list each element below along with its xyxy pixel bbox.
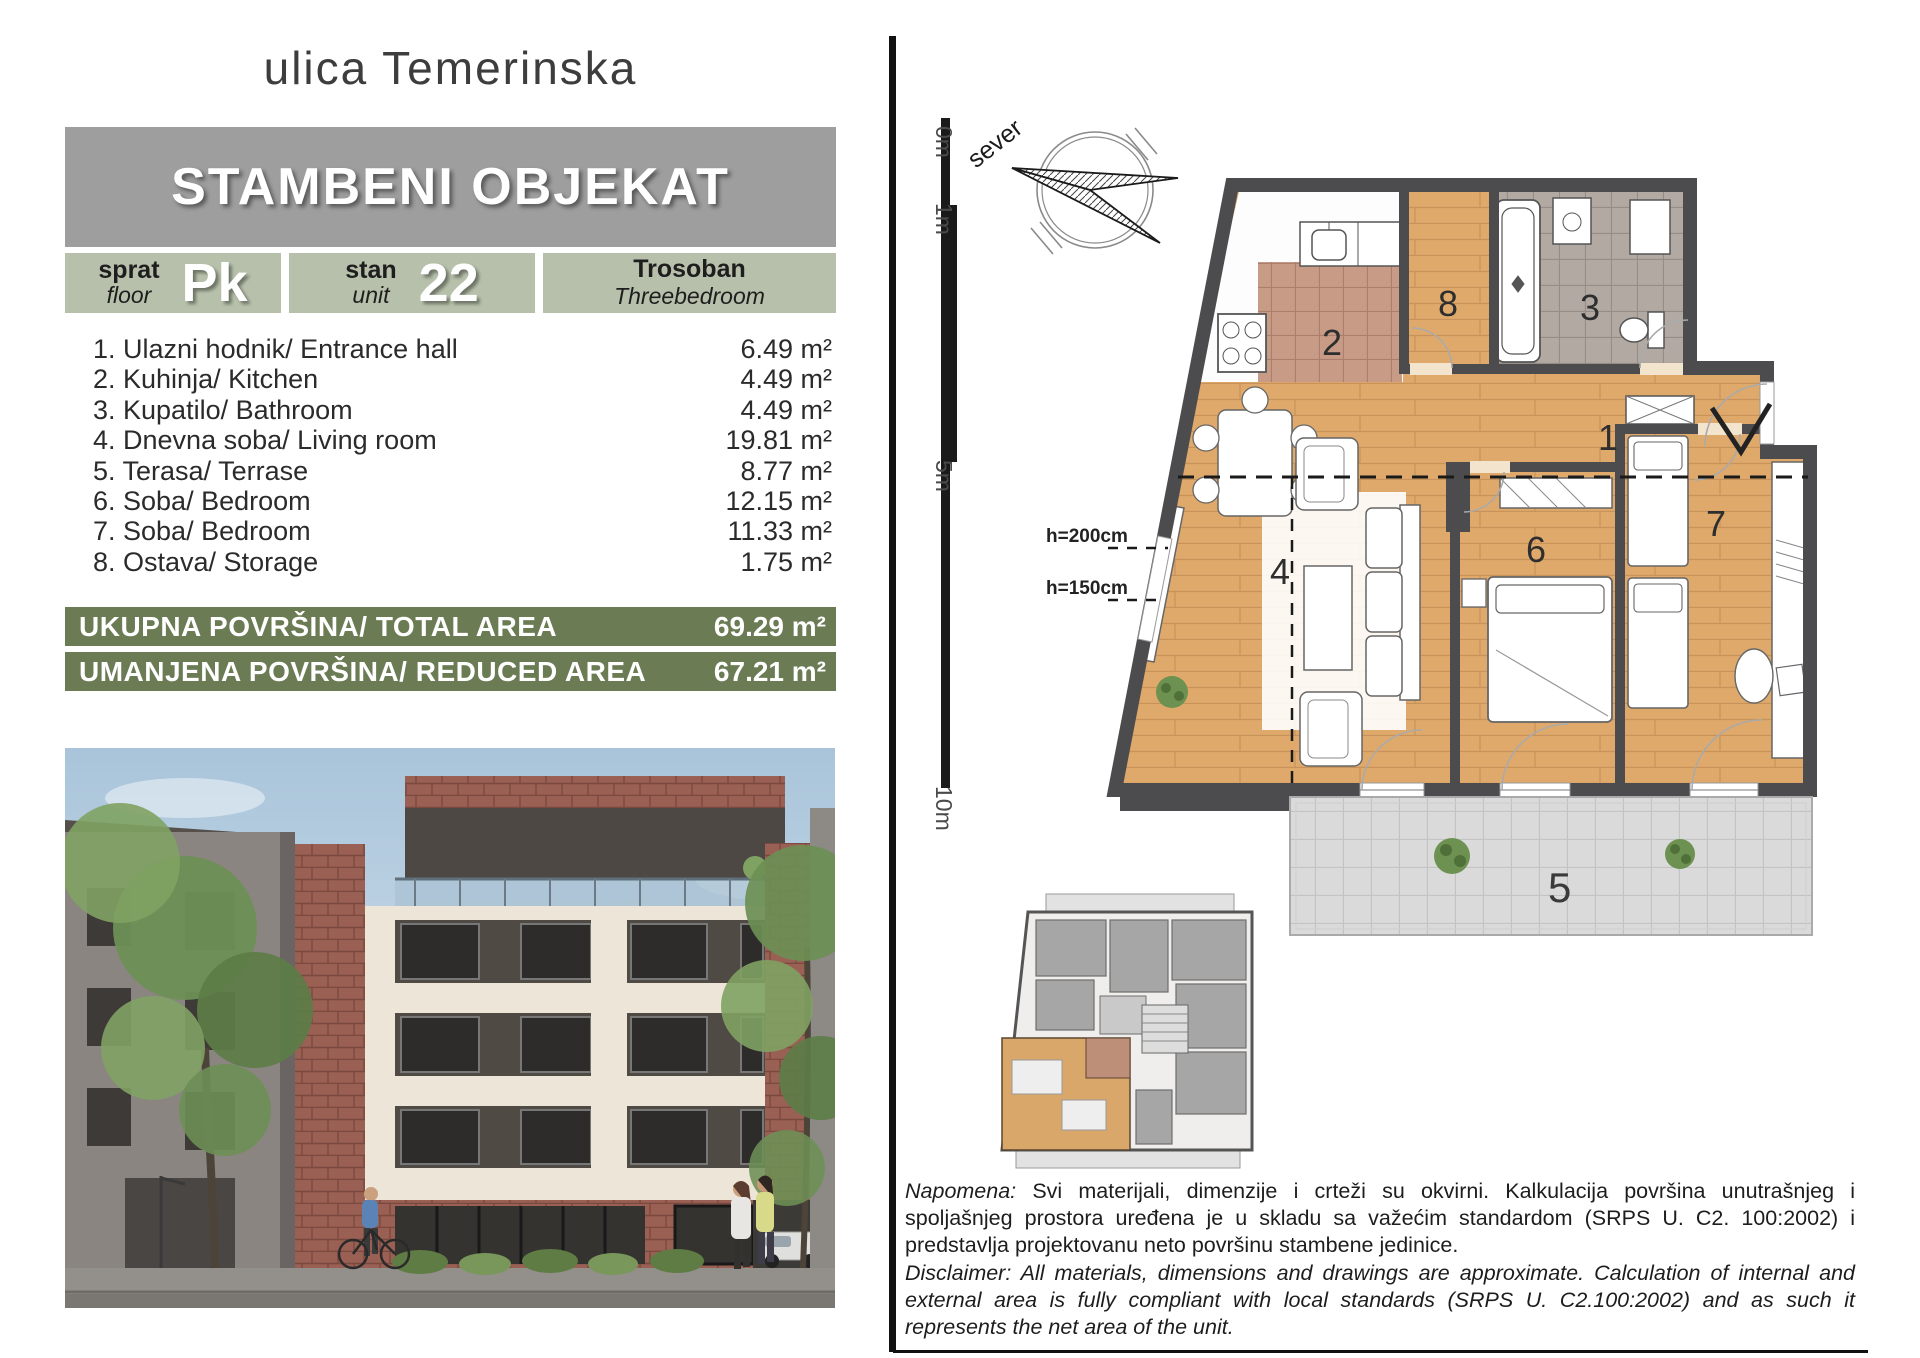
room-label: 3. Kupatilo/ Bathroom <box>93 395 353 426</box>
scale-label-1m: 1m <box>931 203 957 235</box>
room-area: 12.15 m² <box>725 486 832 517</box>
total-area-bar: UKUPNA POVRŠINA/ TOTAL AREA 69.29 m² <box>65 607 836 646</box>
room-area: 4.49 m² <box>740 364 832 395</box>
floor-label-sr: sprat <box>98 258 159 283</box>
room-label: 7. Soba/ Bedroom <box>93 516 311 547</box>
room-row-3: 3. Kupatilo/ Bathroom4.49 m² <box>65 395 836 425</box>
scale-bar: 0m 1m 5m 10m <box>931 118 957 831</box>
floor-label-en: floor <box>98 283 159 308</box>
compass: sever <box>962 114 1178 254</box>
type-label-sr: Trosoban <box>633 256 746 283</box>
height-label-150: h=150cm <box>1046 578 1128 599</box>
room-list: 1. Ulazni hodnik/ Entrance hall6.49 m² 2… <box>65 334 836 577</box>
reduced-area-value: 67.21 m² <box>714 656 826 688</box>
note-english: Disclaimer: All materials, dimensions an… <box>905 1260 1855 1341</box>
room-label: 4. Dnevna soba/ Living room <box>93 425 437 456</box>
room-row-2: 2. Kuhinja/ Kitchen4.49 m² <box>65 364 836 394</box>
plant <box>1156 676 1188 708</box>
room-label: 8. Ostava/ Storage <box>93 547 318 578</box>
key-plan-stairs <box>1142 1005 1188 1053</box>
building-header: STAMBENI OBJEKAT <box>65 127 836 247</box>
sofa <box>1366 505 1420 700</box>
note-serbian-label: Napomena: <box>905 1179 1016 1203</box>
notes-block: Napomena: Svi materijali, dimenzije i cr… <box>905 1178 1855 1342</box>
room-area: 8.77 m² <box>740 456 832 487</box>
terrace-plant-2 <box>1665 839 1695 869</box>
scale-label-0m: 0m <box>931 126 957 158</box>
room-label: 1. Ulazni hodnik/ Entrance hall <box>93 334 458 365</box>
unit-label-sr: stan <box>345 258 396 283</box>
reduced-area-bar: UMANJENA POVRŠINA/ REDUCED AREA 67.21 m² <box>65 652 836 691</box>
room-area: 11.33 m² <box>727 516 832 547</box>
unit-box: stan unit 22 <box>289 253 535 313</box>
floor-plan-panel: 0m 1m 5m 10m sever <box>900 90 1870 1180</box>
note-serbian-text: Svi materijali, dimenzije i crteži su ok… <box>905 1179 1855 1257</box>
type-label-en: Threebedroom <box>614 283 765 310</box>
key-plan <box>1002 894 1252 1168</box>
label-living: 4 <box>1270 551 1290 592</box>
apartment-type-box: Trosoban Threebedroom <box>543 253 836 313</box>
room-label: 2. Kuhinja/ Kitchen <box>93 364 318 395</box>
building-header-label: STAMBENI OBJEKAT <box>171 157 730 217</box>
label-kitchen: 2 <box>1322 322 1342 363</box>
label-hall: 1 <box>1598 417 1618 458</box>
floor-plan: h=200cm h=150cm 1 2 3 4 6 7 8 5 <box>1046 185 1812 935</box>
room-label: 6. Soba/ Bedroom <box>93 486 311 517</box>
room-area: 1.75 m² <box>740 547 832 578</box>
label-storage: 8 <box>1438 283 1458 324</box>
page-title: ulica Temerinska <box>65 40 836 96</box>
bottom-rule <box>893 1350 1868 1353</box>
window-band-1 <box>395 920 765 983</box>
label-bedroom2: 7 <box>1706 503 1726 544</box>
room-row-8: 8. Ostava/ Storage1.75 m² <box>65 547 836 577</box>
unit-label-en: unit <box>345 283 396 308</box>
unit-info-row: sprat floor Pk stan unit 22 Trosoban Thr… <box>65 253 836 313</box>
room-area: 19.81 m² <box>725 425 832 456</box>
height-label-200: h=200cm <box>1046 526 1128 547</box>
room-row-6: 6. Soba/ Bedroom12.15 m² <box>65 486 836 516</box>
total-area-value: 69.29 m² <box>714 611 826 643</box>
room-area: 4.49 m² <box>740 395 832 426</box>
total-area-label: UKUPNA POVRŠINA/ TOTAL AREA <box>79 611 557 643</box>
room-row-5: 5. Terasa/ Terrase8.77 m² <box>65 456 836 486</box>
compass-north-label: sever <box>962 114 1027 174</box>
room-row-7: 7. Soba/ Bedroom11.33 m² <box>65 516 836 546</box>
unit-value: 22 <box>419 252 479 314</box>
note-serbian: Napomena: Svi materijali, dimenzije i cr… <box>905 1178 1855 1259</box>
key-plan-highlight-unit <box>1002 1038 1130 1150</box>
window-band-3 <box>395 1106 765 1168</box>
label-bath: 3 <box>1580 287 1600 328</box>
scale-label-5m: 5m <box>931 460 957 492</box>
street <box>65 1268 835 1308</box>
reduced-area-label: UMANJENA POVRŠINA/ REDUCED AREA <box>79 656 646 688</box>
building-photo <box>65 748 835 1308</box>
label-terrace: 5 <box>1548 864 1571 911</box>
floor-box: sprat floor Pk <box>65 253 281 313</box>
room-area: 6.49 m² <box>740 334 832 365</box>
room-label: 5. Terasa/ Terrase <box>93 456 308 487</box>
note-english-label: Disclaimer: <box>905 1261 1011 1285</box>
label-bedroom1: 6 <box>1526 529 1546 570</box>
terrace-plant-1 <box>1434 838 1470 874</box>
floor-value: Pk <box>182 252 248 314</box>
room-row-1: 1. Ulazni hodnik/ Entrance hall6.49 m² <box>65 334 836 364</box>
hall-closet <box>1626 396 1694 424</box>
vertical-divider <box>889 36 896 1352</box>
scale-label-10m: 10m <box>931 786 957 831</box>
window-band-2 <box>395 1013 765 1076</box>
room-row-4: 4. Dnevna soba/ Living room19.81 m² <box>65 425 836 455</box>
note-english-text: All materials, dimensions and drawings a… <box>905 1261 1855 1339</box>
